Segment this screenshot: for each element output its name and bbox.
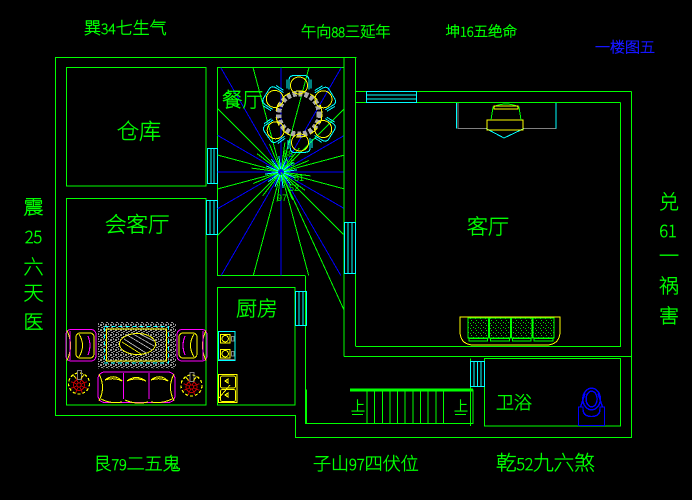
svg-text:97: 97 [277, 193, 287, 203]
svg-text:61: 61 [294, 173, 304, 183]
svg-text:52: 52 [289, 183, 299, 193]
svg-text:16: 16 [285, 158, 295, 168]
